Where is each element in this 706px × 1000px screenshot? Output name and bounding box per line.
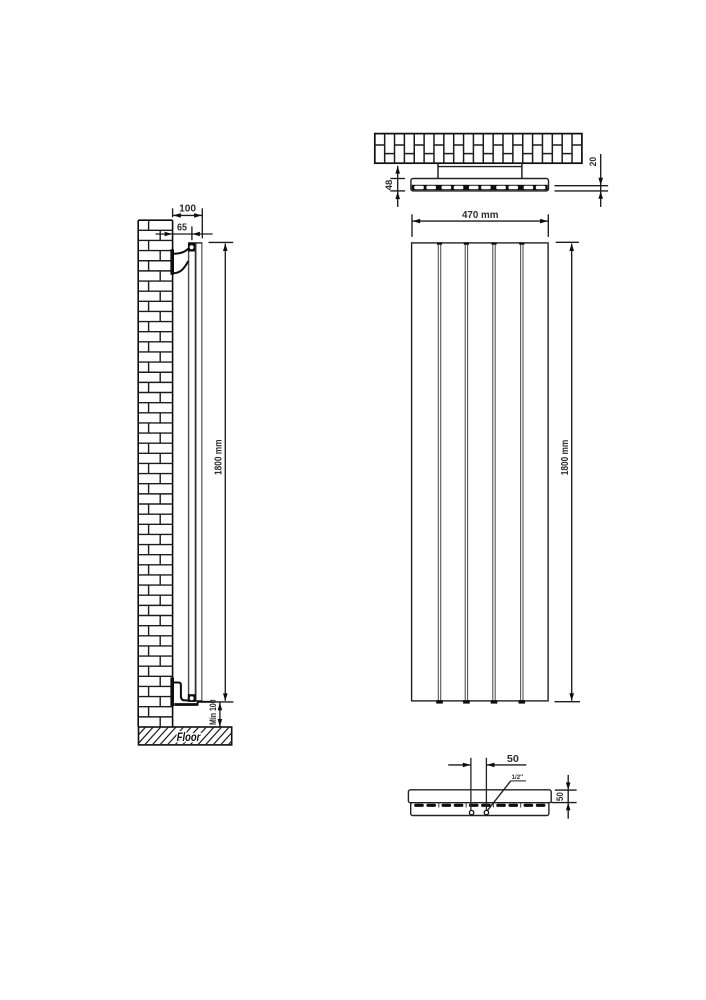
svg-text:65: 65: [177, 223, 187, 234]
svg-text:100: 100: [179, 204, 196, 215]
svg-text:1800 mm: 1800 mm: [213, 439, 224, 475]
svg-text:1800 mm: 1800 mm: [560, 440, 571, 476]
svg-text:1/2″: 1/2″: [512, 774, 524, 781]
svg-text:Floor: Floor: [177, 732, 201, 744]
svg-text:20: 20: [588, 157, 599, 167]
svg-text:Min 100: Min 100: [208, 699, 218, 725]
svg-text:470 mm: 470 mm: [462, 210, 499, 221]
svg-text:50: 50: [555, 792, 565, 801]
svg-text:48: 48: [384, 180, 394, 191]
svg-text:50: 50: [507, 754, 519, 765]
